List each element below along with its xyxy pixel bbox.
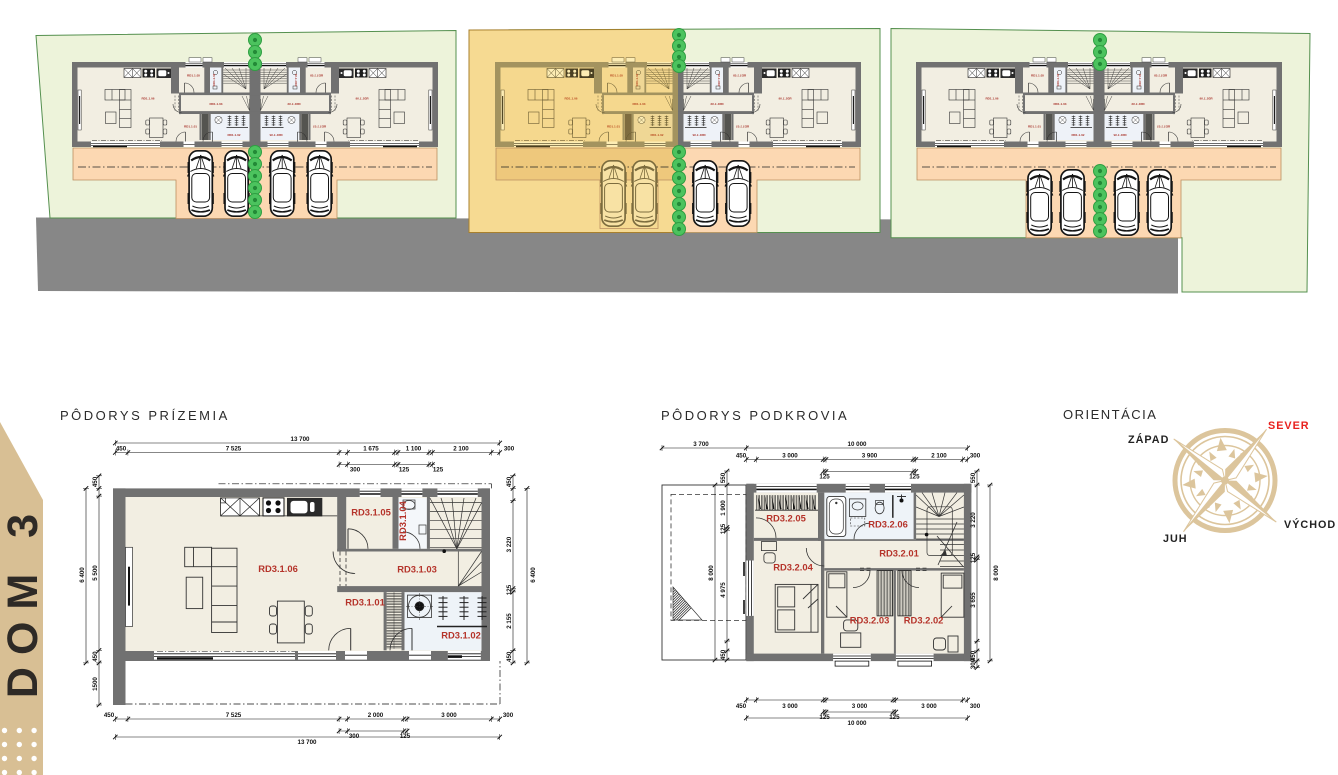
svg-text:RD3.2.02: RD3.2.02 <box>904 615 944 626</box>
svg-text:1500: 1500 <box>92 677 99 691</box>
svg-text:125: 125 <box>400 733 411 740</box>
svg-text:3 220: 3 220 <box>970 512 977 528</box>
svg-text:1 900: 1 900 <box>720 500 727 516</box>
svg-text:300: 300 <box>504 446 515 453</box>
svg-text:450: 450 <box>736 703 747 710</box>
svg-text:125: 125 <box>399 466 410 473</box>
svg-text:1 100: 1 100 <box>406 446 422 453</box>
svg-text:RD3.1.03: RD3.1.03 <box>397 564 437 575</box>
svg-text:RD3.1.04: RD3.1.04 <box>397 500 408 540</box>
svg-text:RD3.2.01: RD3.2.01 <box>879 548 919 559</box>
svg-text:125: 125 <box>889 714 900 721</box>
svg-text:13 700: 13 700 <box>298 739 317 746</box>
svg-text:RD3.2.04: RD3.2.04 <box>773 562 813 573</box>
svg-text:3 000: 3 000 <box>782 453 798 460</box>
svg-text:10 000: 10 000 <box>848 720 867 727</box>
svg-text:300: 300 <box>970 453 981 460</box>
svg-text:RD3.1.02: RD3.1.02 <box>441 630 481 641</box>
svg-text:2 155: 2 155 <box>506 613 513 629</box>
svg-text:RD3.1.06: RD3.1.06 <box>258 563 298 574</box>
svg-text:125: 125 <box>433 466 444 473</box>
svg-text:2 000: 2 000 <box>368 712 384 719</box>
svg-text:450: 450 <box>92 651 99 662</box>
svg-text:3 000: 3 000 <box>441 712 457 719</box>
svg-text:8 000: 8 000 <box>993 565 1000 581</box>
svg-text:450: 450 <box>506 651 513 662</box>
svg-text:125: 125 <box>506 584 513 595</box>
svg-text:JUH: JUH <box>1163 533 1188 545</box>
svg-text:125: 125 <box>720 523 727 534</box>
svg-text:RD3.2.03: RD3.2.03 <box>850 615 890 626</box>
svg-text:450: 450 <box>116 446 127 453</box>
svg-text:5 500: 5 500 <box>92 565 99 581</box>
svg-text:7 525: 7 525 <box>226 712 242 719</box>
svg-text:125: 125 <box>970 552 977 563</box>
svg-text:300: 300 <box>503 712 514 719</box>
svg-text:2 100: 2 100 <box>453 446 469 453</box>
svg-text:450: 450 <box>104 712 115 719</box>
svg-text:3 000: 3 000 <box>921 703 937 710</box>
svg-text:550: 550 <box>970 472 977 483</box>
svg-text:4 975: 4 975 <box>720 582 727 598</box>
svg-text:SEVER: SEVER <box>1268 420 1310 432</box>
svg-text:8 000: 8 000 <box>708 565 715 581</box>
svg-text:PÔDORYS PODKROVIA: PÔDORYS PODKROVIA <box>661 408 849 423</box>
svg-text:3 000: 3 000 <box>782 703 798 710</box>
svg-text:RD3.2.06: RD3.2.06 <box>868 519 908 530</box>
svg-text:3 655: 3 655 <box>970 592 977 608</box>
svg-text:300: 300 <box>350 466 361 473</box>
svg-text:3 700: 3 700 <box>693 441 709 448</box>
svg-text:RD3.1.01: RD3.1.01 <box>345 597 385 608</box>
svg-text:550: 550 <box>720 472 727 483</box>
svg-text:DOM 3: DOM 3 <box>0 502 47 698</box>
svg-text:PÔDORYS PRÍZEMIA: PÔDORYS PRÍZEMIA <box>60 408 230 423</box>
svg-text:10 000: 10 000 <box>848 441 867 448</box>
svg-text:300: 300 <box>970 658 977 669</box>
svg-text:7 525: 7 525 <box>226 446 242 453</box>
svg-text:RD3.2.05: RD3.2.05 <box>766 513 806 524</box>
svg-text:450: 450 <box>92 476 99 487</box>
svg-text:450: 450 <box>506 476 513 487</box>
svg-text:3 220: 3 220 <box>506 536 513 552</box>
svg-text:1 675: 1 675 <box>363 446 379 453</box>
svg-text:300: 300 <box>349 733 360 740</box>
svg-text:125: 125 <box>819 714 830 721</box>
svg-text:450: 450 <box>720 649 727 660</box>
svg-text:125: 125 <box>909 473 920 480</box>
svg-text:13 700: 13 700 <box>291 436 310 443</box>
svg-text:ORIENTÁCIA: ORIENTÁCIA <box>1063 407 1157 422</box>
svg-text:6 400: 6 400 <box>530 567 537 583</box>
svg-text:ZÁPAD: ZÁPAD <box>1128 433 1169 446</box>
svg-text:300: 300 <box>970 703 981 710</box>
svg-text:2 100: 2 100 <box>931 453 947 460</box>
svg-text:RD3.1.05: RD3.1.05 <box>351 507 391 518</box>
svg-text:VÝCHOD: VÝCHOD <box>1284 518 1336 531</box>
svg-text:125: 125 <box>819 473 830 480</box>
svg-text:3 900: 3 900 <box>862 453 878 460</box>
svg-text:3 000: 3 000 <box>852 703 868 710</box>
svg-text:450: 450 <box>736 453 747 460</box>
svg-text:6 400: 6 400 <box>79 567 86 583</box>
